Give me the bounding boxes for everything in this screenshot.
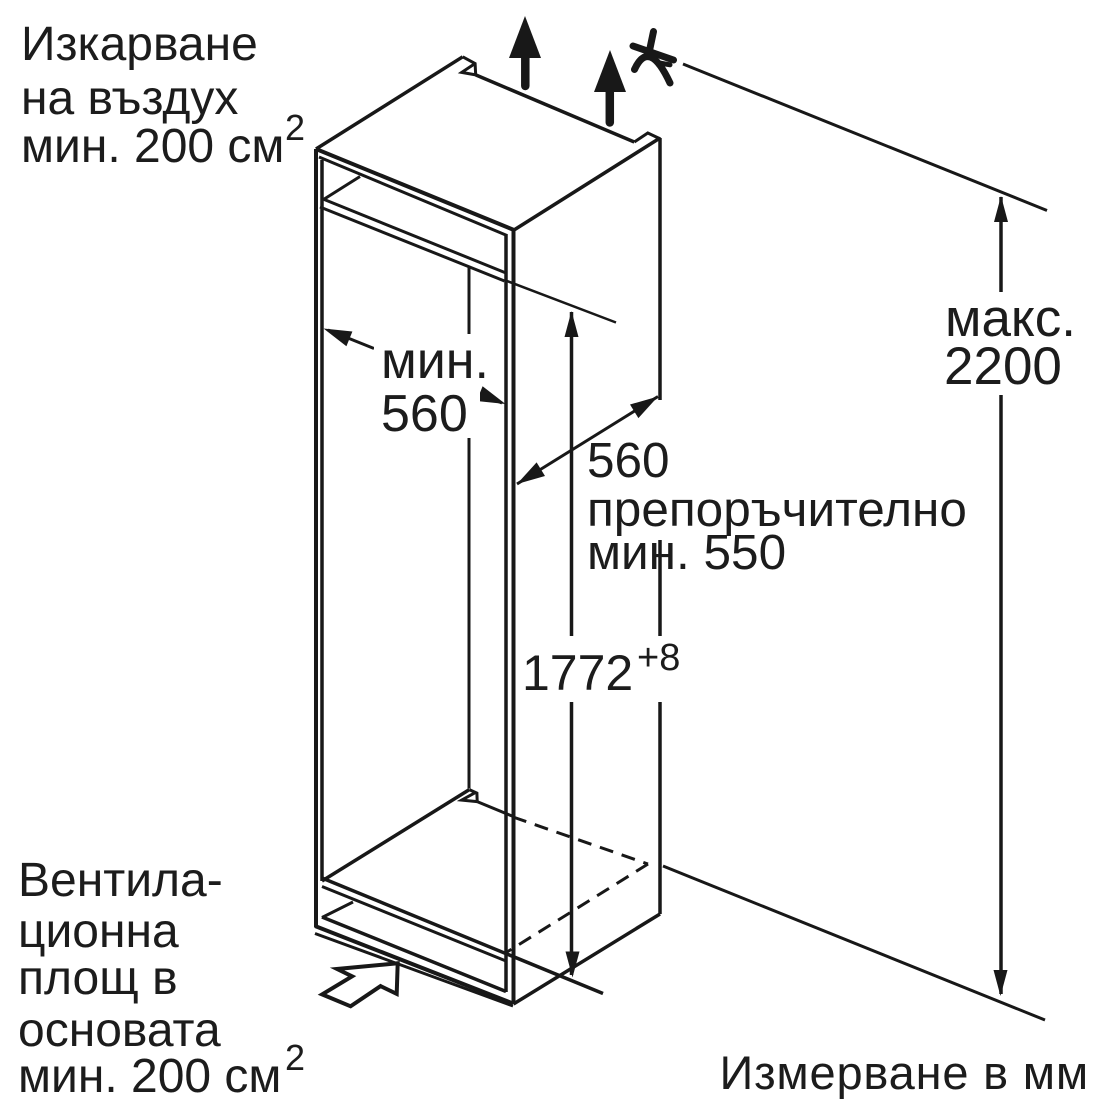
svg-text:мин. 200 см: мин. 200 см bbox=[18, 1050, 281, 1103]
svg-text:ционна: ционна bbox=[18, 905, 179, 958]
svg-text:1772: 1772 bbox=[522, 645, 633, 701]
svg-text:мин.: мин. bbox=[381, 332, 489, 390]
svg-text:2: 2 bbox=[285, 107, 305, 148]
svg-text:560: 560 bbox=[381, 385, 468, 443]
svg-text:мин. 200 см: мин. 200 см bbox=[21, 120, 284, 173]
svg-text:Изкарване: Изкарване bbox=[21, 18, 258, 71]
svg-text:мин. 550: мин. 550 bbox=[587, 525, 786, 580]
svg-text:Вентила-: Вентила- bbox=[18, 854, 223, 907]
svg-text:на въздух: на въздух bbox=[21, 72, 238, 125]
svg-text:560: 560 bbox=[587, 433, 670, 488]
svg-text:2200: 2200 bbox=[944, 337, 1062, 396]
svg-text:Измерване в мм: Измерване в мм bbox=[720, 1046, 1090, 1099]
svg-text:+8: +8 bbox=[637, 637, 680, 679]
svg-text:2: 2 bbox=[285, 1037, 305, 1078]
svg-text:площ в: площ в bbox=[18, 952, 178, 1005]
